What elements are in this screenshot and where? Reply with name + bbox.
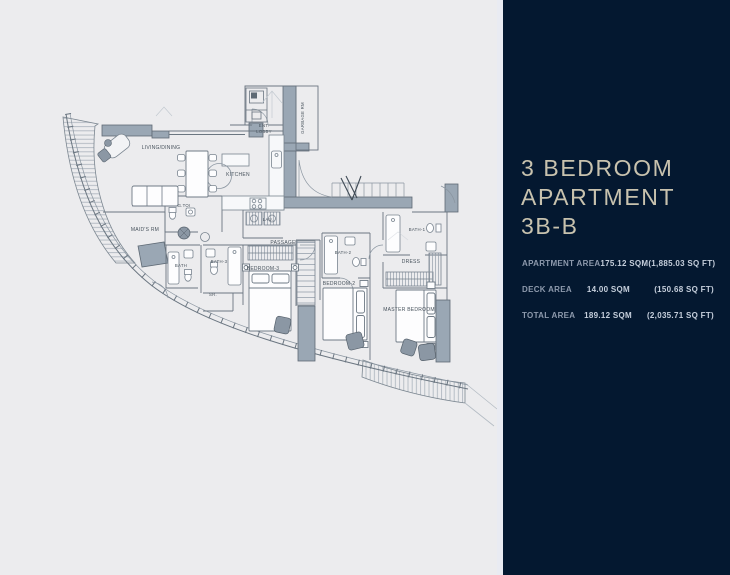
room-label-dress: DRESS <box>402 259 421 265</box>
room-label-lau: LAU. <box>263 217 274 222</box>
room-label-passage: PASSAGE <box>270 240 296 246</box>
apartment-title: 3 BEDROOM APARTMENT 3B-B <box>521 154 675 241</box>
deck-bottom-right <box>362 360 497 426</box>
room-label-sr: SR. <box>209 292 217 297</box>
room-label-bath-3: BATH-3 <box>211 259 228 264</box>
room-label-bath: BATH <box>175 263 187 268</box>
room-label-maids-rm: MAID'S RM <box>131 227 159 233</box>
area-table: APARTMENT AREA 175.12 SQM (1,885.03 SQ F… <box>522 259 714 337</box>
info-panel: 3 BEDROOM APARTMENT 3B-B APARTMENT AREA … <box>503 0 730 575</box>
area-sqm-value: 175.12 SQM <box>600 259 648 268</box>
room-label-lobby: LOBBY <box>256 129 272 134</box>
elevator <box>246 88 267 122</box>
apartment-title-line-1: 3 BEDROOM <box>521 154 675 183</box>
apartment-title-line-2: APARTMENT <box>521 183 675 212</box>
room-label-kitchen: KITCHEN <box>226 172 250 178</box>
area-label: DECK AREA <box>522 285 572 294</box>
stairs <box>299 160 455 203</box>
room-label-living-dining: LIVING/DINING <box>142 145 181 151</box>
area-sqft-value: (150.68 SQ FT) <box>630 285 714 294</box>
room-label-bedroom-2: BEDROOM-2 <box>323 281 356 287</box>
room-label-master-bedroom: MASTER BEDROOM <box>383 307 435 313</box>
room-label-g-toi: G.TOI <box>178 203 191 208</box>
apartment-title-line-3: 3B-B <box>521 212 675 241</box>
room-label-bath-2: BATH-2 <box>335 250 352 255</box>
room-label-ent: ENT. <box>259 123 269 128</box>
room-label-bedroom-3: BEDROOM-3 <box>247 266 280 272</box>
area-row-deck: DECK AREA 14.00 SQM (150.68 SQ FT) <box>522 285 714 294</box>
area-row-apartment: APARTMENT AREA 175.12 SQM (1,885.03 SQ F… <box>522 259 714 268</box>
area-row-total: TOTAL AREA 189.12 SQM (2,035.71 SQ FT) <box>522 311 714 320</box>
area-sqft-value: (1,885.03 SQ FT) <box>648 259 715 268</box>
page-canvas: LIVING/DINING KITCHEN ENT. LOBBY GARBAGE… <box>0 0 730 575</box>
area-sqm-value: 14.00 SQM <box>572 285 630 294</box>
area-label: TOTAL AREA <box>522 311 575 320</box>
room-label-bath-1: BATH-1 <box>409 227 426 232</box>
area-sqft-value: (2,035.71 SQ FT) <box>632 311 714 320</box>
area-label: APARTMENT AREA <box>522 259 600 268</box>
room-label-garbage-rm: GARBAGE RM <box>300 102 305 134</box>
area-sqm-value: 189.12 SQM <box>575 311 632 320</box>
